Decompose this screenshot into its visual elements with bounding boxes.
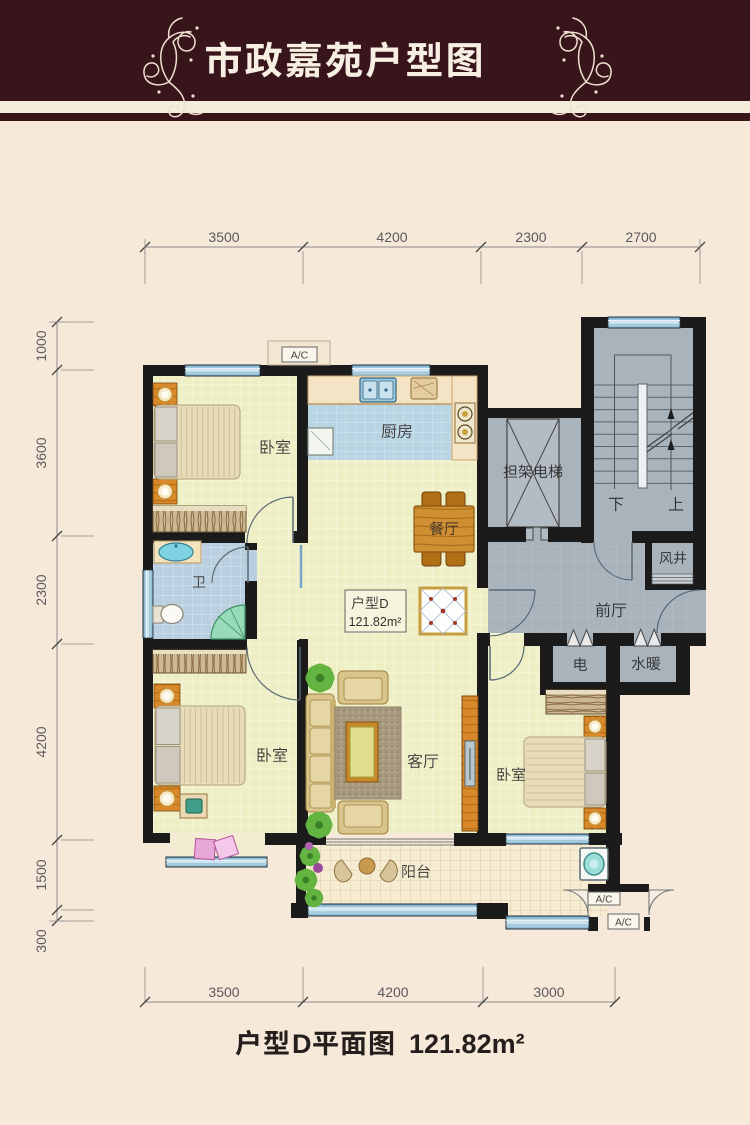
svg-text:1500: 1500 bbox=[33, 859, 49, 890]
svg-text:300: 300 bbox=[33, 929, 49, 953]
svg-text:1000: 1000 bbox=[33, 330, 49, 361]
svg-text:121.82m²: 121.82m² bbox=[349, 615, 402, 629]
svg-text:A/C: A/C bbox=[596, 895, 613, 906]
svg-text:2700: 2700 bbox=[625, 229, 656, 245]
svg-text:3500: 3500 bbox=[208, 984, 239, 1000]
svg-text:4200: 4200 bbox=[376, 229, 407, 245]
svg-text:D: D bbox=[379, 596, 388, 611]
svg-text:2300: 2300 bbox=[33, 574, 49, 605]
svg-text:2300: 2300 bbox=[515, 229, 546, 245]
svg-text:3000: 3000 bbox=[533, 984, 564, 1000]
svg-text:4200: 4200 bbox=[33, 726, 49, 757]
svg-text:3500: 3500 bbox=[208, 229, 239, 245]
svg-text:4200: 4200 bbox=[377, 984, 408, 1000]
svg-text:3600: 3600 bbox=[33, 437, 49, 468]
svg-text:A/C: A/C bbox=[615, 918, 632, 929]
svg-text:A/C: A/C bbox=[291, 350, 309, 362]
svg-text:D: D bbox=[292, 1029, 312, 1059]
svg-text:121.82m²: 121.82m² bbox=[409, 1029, 525, 1059]
